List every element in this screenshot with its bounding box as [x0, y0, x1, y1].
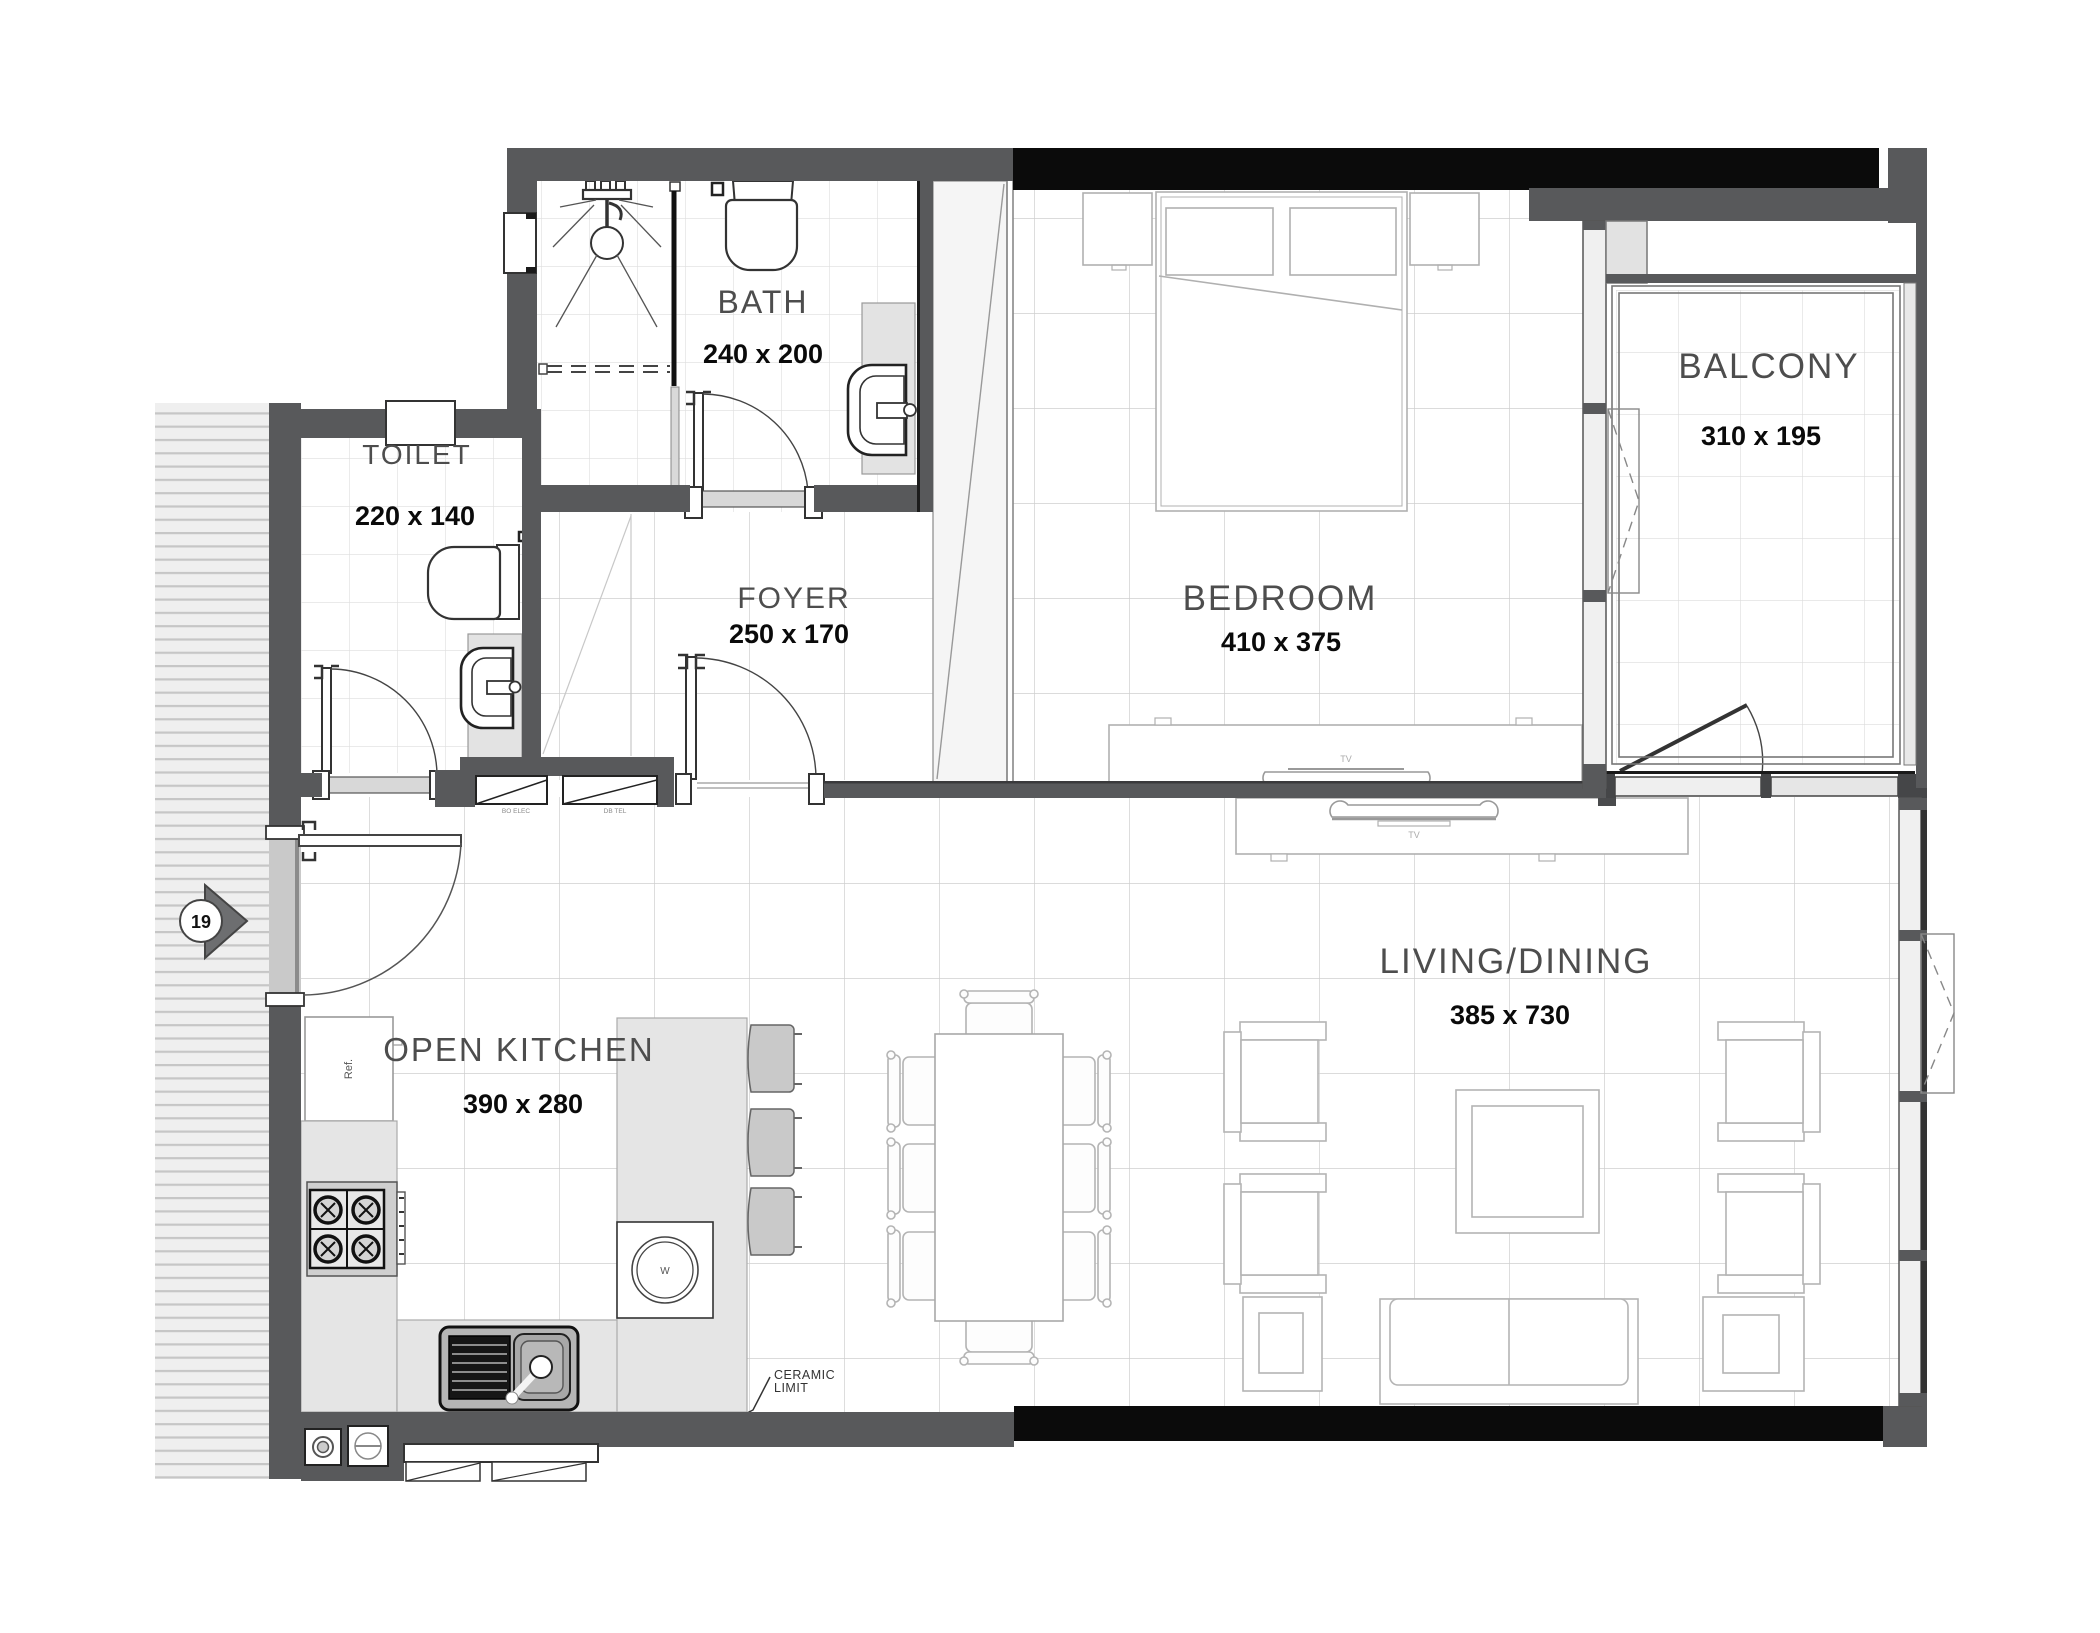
svg-text:TV: TV	[1340, 754, 1352, 764]
svg-text:410 x 375: 410 x 375	[1221, 627, 1341, 657]
svg-text:19: 19	[191, 912, 211, 932]
svg-text:BEDROOM: BEDROOM	[1183, 579, 1378, 618]
svg-text:TV: TV	[1408, 830, 1420, 840]
svg-text:240 x 200: 240 x 200	[703, 339, 823, 369]
svg-text:220 x 140: 220 x 140	[355, 501, 475, 531]
svg-text:Ref.: Ref.	[343, 1059, 355, 1079]
svg-text:BO ELEC: BO ELEC	[502, 808, 530, 815]
svg-text:OPEN KITCHEN: OPEN KITCHEN	[383, 1031, 655, 1068]
svg-text:BATH: BATH	[718, 284, 809, 320]
svg-text:LIVING/DINING: LIVING/DINING	[1380, 942, 1653, 981]
svg-text:310 x 195: 310 x 195	[1701, 421, 1821, 451]
svg-text:LIMIT: LIMIT	[774, 1381, 808, 1395]
svg-text:W: W	[660, 1266, 670, 1277]
svg-text:CERAMIC: CERAMIC	[774, 1368, 835, 1382]
svg-text:DB TEL: DB TEL	[604, 808, 627, 815]
svg-text:390 x 280: 390 x 280	[463, 1089, 583, 1119]
svg-text:BALCONY: BALCONY	[1678, 347, 1859, 386]
svg-text:385 x 730: 385 x 730	[1450, 1000, 1570, 1030]
svg-text:250 x 170: 250 x 170	[729, 619, 849, 649]
svg-text:FOYER: FOYER	[737, 582, 850, 615]
svg-text:TOILET: TOILET	[362, 439, 472, 470]
